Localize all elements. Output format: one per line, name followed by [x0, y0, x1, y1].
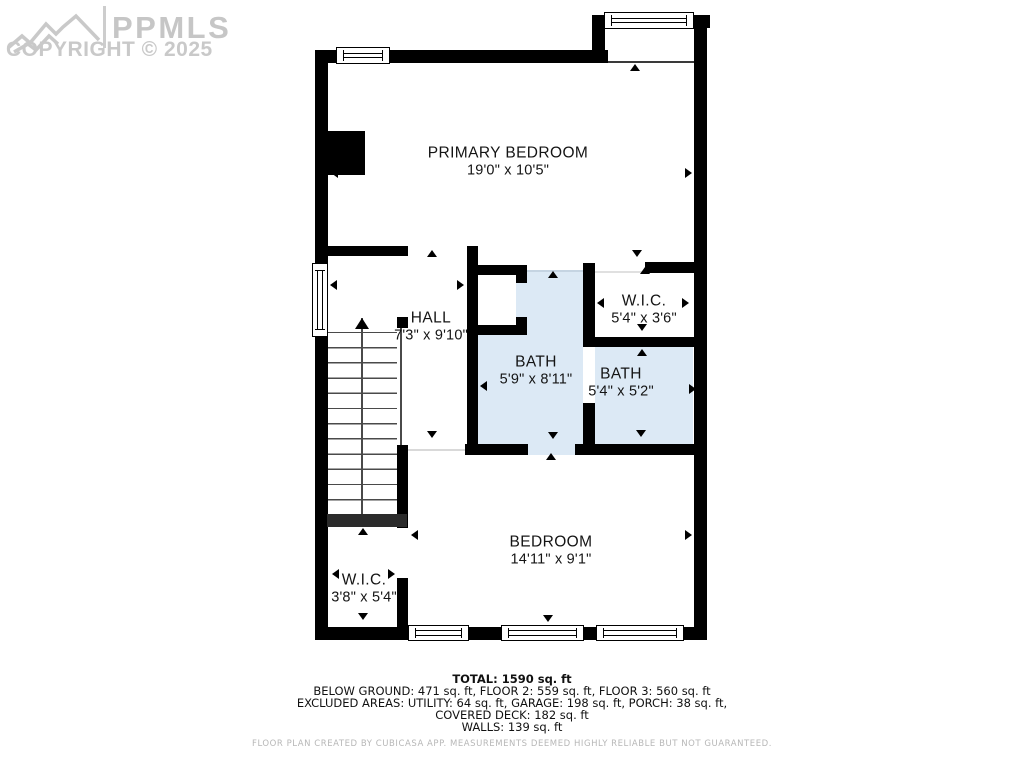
- room-name: W.I.C.: [331, 573, 397, 590]
- room-name: BEDROOM: [510, 535, 593, 552]
- dimension-arrow-icon: [427, 431, 437, 438]
- room-dimensions: 5'4" x 5'2": [588, 383, 654, 400]
- wall: [467, 246, 478, 455]
- dimension-arrow-icon: [427, 250, 437, 257]
- room-name: PRIMARY BEDROOM: [428, 146, 588, 163]
- wall: [516, 317, 527, 335]
- area-summary: TOTAL: 1590 sq. ft BELOW GROUND: 471 sq.…: [0, 673, 1024, 751]
- room-label-wic-upper: W.I.C. 5'4" x 3'6": [611, 294, 677, 327]
- window: [408, 625, 469, 641]
- room-name: BATH: [500, 355, 573, 372]
- room-label-primary-bedroom: PRIMARY BEDROOM 19'0" x 10'5": [428, 146, 588, 179]
- under-stair-wall: [327, 514, 407, 527]
- dimension-arrow-icon: [682, 298, 689, 308]
- wall: [583, 263, 595, 347]
- dimension-arrow-icon: [630, 64, 640, 71]
- dimension-arrow-icon: [543, 615, 553, 622]
- disclaimer-text: FLOOR PLAN CREATED BY CUBICASA APP. MEAS…: [0, 738, 1024, 750]
- dimension-arrow-icon: [548, 271, 558, 278]
- window: [336, 47, 390, 64]
- window: [501, 625, 584, 641]
- room-name: HALL: [394, 311, 468, 328]
- dimension-arrow-icon: [632, 250, 642, 257]
- wic-door-threshold-line: [595, 271, 645, 273]
- room-dimensions: 19'0" x 10'5": [428, 162, 588, 179]
- room-label-bath-2: BATH 5'4" x 5'2": [588, 367, 654, 400]
- dimension-arrow-icon: [689, 384, 696, 394]
- dimension-arrow-icon: [358, 528, 368, 535]
- room-name: BATH: [588, 367, 654, 384]
- hall-threshold-line: [403, 449, 465, 451]
- wall: [645, 262, 697, 273]
- dimension-arrow-icon: [548, 432, 558, 439]
- window: [312, 263, 328, 337]
- ppmls-logo: PPMLS COPYRIGHT © 2025: [6, 6, 216, 68]
- room-dimensions: 5'9" x 8'11": [500, 371, 573, 388]
- room-label-bath-1: BATH 5'9" x 8'11": [500, 355, 573, 388]
- wall: [694, 15, 707, 640]
- dimension-arrow-icon: [411, 530, 418, 540]
- dimension-arrow-icon: [597, 298, 604, 308]
- room-dimensions: 7'3" x 9'10": [394, 327, 468, 344]
- room-label-hall: HALL 7'3" x 9'10": [394, 311, 468, 344]
- wall: [516, 265, 527, 283]
- dimension-arrow-icon: [640, 267, 650, 274]
- wall: [465, 444, 528, 455]
- room-label-bedroom: BEDROOM 14'11" x 9'1": [510, 535, 593, 568]
- room-label-wic-lower: W.I.C. 3'8" x 5'4": [331, 573, 397, 606]
- room-dimensions: 3'8" x 5'4": [331, 589, 397, 606]
- room-name: W.I.C.: [611, 294, 677, 311]
- wall: [397, 578, 408, 628]
- wall: [575, 444, 707, 455]
- wall: [583, 337, 697, 347]
- stair-direction-up-icon: [355, 318, 369, 329]
- dimension-arrow-icon: [330, 280, 337, 290]
- stair-center-line: [361, 318, 363, 516]
- room-dimensions: 14'11" x 9'1": [510, 551, 593, 568]
- dimension-arrow-icon: [546, 453, 556, 460]
- dimension-arrow-icon: [685, 168, 692, 178]
- window: [604, 12, 694, 29]
- window: [596, 625, 684, 641]
- deck-nook-line: [605, 61, 694, 63]
- bath-1-shower-nook: [478, 275, 516, 325]
- walls-area-text: WALLS: 139 sq. ft: [0, 721, 1024, 733]
- dimension-arrow-icon: [636, 430, 646, 437]
- dimension-arrow-icon: [637, 349, 647, 356]
- dimension-arrow-icon: [685, 530, 692, 540]
- dimension-arrow-icon: [480, 381, 487, 391]
- room-dimensions: 5'4" x 3'6": [611, 310, 677, 327]
- logo-copyright-text: COPYRIGHT © 2025: [6, 38, 213, 62]
- floor-plan-page: PPMLS COPYRIGHT © 2025 PRIMARY BEDR: [0, 0, 1024, 767]
- dimension-arrow-icon: [331, 168, 338, 178]
- wall: [327, 246, 408, 256]
- dimension-arrow-icon: [358, 613, 368, 620]
- dimension-arrow-icon: [457, 280, 464, 290]
